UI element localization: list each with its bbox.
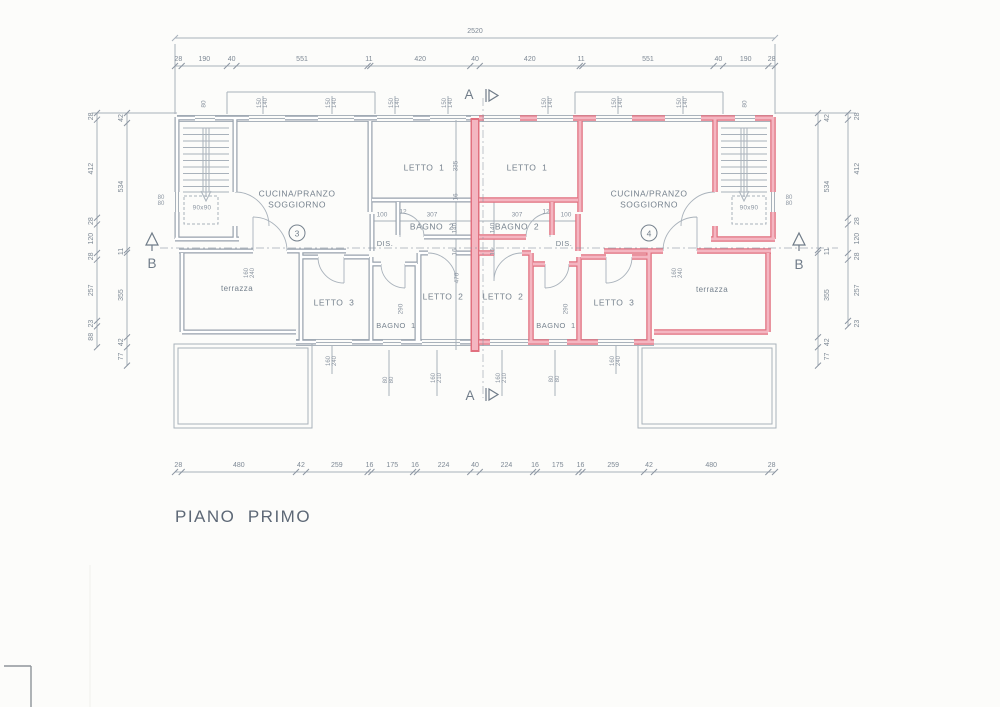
- dim-label: 190: [740, 56, 752, 63]
- dim-label: 412: [854, 163, 861, 175]
- dim-label: 42: [645, 462, 653, 469]
- dim-label: 257: [854, 284, 861, 296]
- dim-label: 11: [577, 56, 584, 63]
- room-label-bagno1-right: BAGNO 1: [536, 322, 575, 330]
- window-dim-pair: 150 140: [326, 98, 338, 108]
- section-label-b-right: B: [794, 258, 803, 272]
- overall-dimension: 2520: [172, 28, 778, 41]
- dim-chain-right-inner: 42534113554277: [815, 110, 831, 369]
- dim-small: 80: [743, 100, 750, 107]
- dim-small: 12: [542, 210, 549, 217]
- dim-label: 551: [642, 56, 654, 63]
- dim-label: 42: [297, 462, 305, 469]
- dim-label: 23: [854, 320, 861, 328]
- room-label-cucina-4-line1: CUCINA/PRANZO: [611, 190, 688, 199]
- dim-small: 80: [202, 100, 209, 107]
- stair-box-label-right: 90x90: [740, 206, 759, 213]
- room-label-letto1-right: LETTO 1: [507, 164, 548, 173]
- dim-label: 480: [233, 462, 245, 469]
- section-arrow-a-top: [486, 89, 498, 102]
- dim-small: 290: [399, 304, 406, 315]
- dim-label: 28: [768, 462, 776, 469]
- dim-label: 534: [118, 181, 125, 193]
- dim-label: 42: [824, 114, 831, 122]
- drawing-title: PIANO PRIMO: [175, 508, 311, 526]
- walls-apartment-4-highlighted: [475, 117, 775, 352]
- dim-label: 16: [411, 462, 419, 469]
- window-dim-pair: 160 240: [610, 356, 622, 366]
- dim-label: 11: [118, 248, 125, 255]
- dim-label: 28: [88, 112, 95, 120]
- room-label-bagno2-left: BAGNO 2: [410, 223, 454, 232]
- window-dim-pair: 160 240: [244, 268, 256, 278]
- dim-label: 28: [854, 112, 861, 120]
- dim-label: 11: [365, 56, 372, 63]
- dim-label: 420: [414, 56, 426, 63]
- window-dim-pair: 150 140: [677, 98, 689, 108]
- dim-label: 11: [824, 248, 831, 255]
- dim-small: 290: [564, 304, 571, 315]
- section-lines: [160, 98, 838, 398]
- dim-label: 16: [577, 462, 585, 469]
- dim-label: 190: [198, 56, 210, 63]
- room-label-dis-left: DIS.: [377, 240, 394, 248]
- window-dim-pair: 160 240: [326, 356, 338, 366]
- dim-label: 28: [88, 217, 95, 225]
- dim-chain-left-outer: 2841228120282572388: [88, 110, 100, 350]
- room-label-letto2-right: LETTO 2: [483, 293, 524, 302]
- dim-label: 534: [824, 181, 831, 193]
- dim-label: 28: [854, 217, 861, 225]
- section-arrow-a-bottom: [486, 388, 498, 401]
- dim-label: 40: [228, 56, 236, 63]
- dim-small: 16: [453, 248, 460, 255]
- dim-small: 12: [399, 210, 406, 217]
- dim-label: 42: [118, 114, 125, 122]
- dim-label: 40: [471, 56, 479, 63]
- dim-label: 480: [705, 462, 717, 469]
- dim-label: 259: [607, 462, 619, 469]
- dim-chain-left-inner: 42534113554277: [118, 110, 130, 369]
- room-label-letto3-right: LETTO 3: [594, 299, 635, 308]
- room-label-terrazza-right: terrazza: [696, 286, 728, 294]
- section-label-a-bottom: A: [465, 389, 474, 403]
- apartment-number-3: 3: [289, 225, 306, 242]
- room-label-cucina-3-line1: CUCINA/PRANZO: [259, 190, 336, 199]
- room-label-letto3-left: LETTO 3: [314, 299, 355, 308]
- frame-corner: [4, 666, 31, 707]
- dim-label: 355: [824, 289, 831, 301]
- room-label-cucina-3-line2: SOGGIORNO: [268, 201, 326, 210]
- dim-label: 28: [88, 252, 95, 260]
- floor-plan-drawing: 2520 28190405511142040420115514019028284…: [0, 0, 1000, 707]
- dim-label: 28: [174, 462, 182, 469]
- dim-label: 40: [714, 56, 722, 63]
- dim-label: 224: [438, 462, 450, 469]
- dim-label: 77: [118, 352, 125, 360]
- dim-label: 551: [296, 56, 308, 63]
- dim-label: 28: [854, 252, 861, 260]
- dim-small: 140: [453, 223, 460, 234]
- dim-small: 16: [454, 193, 461, 200]
- dim-label: 120: [88, 233, 95, 245]
- dim-small: 307: [427, 213, 438, 220]
- window-dim-pair: 150 140: [257, 98, 269, 108]
- room-label-letto1-left: LETTO 1: [404, 164, 445, 173]
- dim-chain-top: 28190405511142040420115514019028: [172, 56, 778, 69]
- window-dim-pair: 160 210: [431, 373, 443, 383]
- dim-label: 28: [768, 56, 776, 63]
- dim-label: 412: [88, 163, 95, 175]
- dim-label: 16: [366, 462, 374, 469]
- section-label-b-left: B: [147, 257, 156, 271]
- window-dim-pair: 160 210: [496, 373, 508, 383]
- dim-small: 16: [491, 248, 498, 255]
- dim-label: 23: [88, 320, 95, 328]
- overall-dim-label: 2520: [467, 28, 483, 35]
- room-label-terrazza-left: terrazza: [221, 285, 253, 293]
- window-dim-pair: 150 140: [389, 98, 401, 108]
- room-label-dis-right: DIS.: [556, 240, 573, 248]
- dim-label: 257: [88, 284, 95, 296]
- room-label-cucina-4-line2: SOGGIORNO: [620, 201, 678, 210]
- section-label-a-top: A: [464, 88, 473, 102]
- room-label-bagno2-right: BAGNO 2: [495, 223, 539, 232]
- dim-small: 335: [454, 161, 461, 172]
- window-dim-pair: 150 140: [612, 98, 624, 108]
- room-label-letto2-left: LETTO 2: [423, 293, 464, 302]
- dim-label: 120: [854, 233, 861, 245]
- dim-label: 420: [524, 56, 536, 63]
- stair-box-label-left: 90x90: [193, 206, 212, 213]
- dim-small: 140: [491, 223, 498, 234]
- window-dim-pair: 80 80: [786, 195, 793, 207]
- apartment-number-4: 4: [641, 225, 658, 242]
- dim-small: 470: [455, 273, 462, 284]
- dim-chain-bottom: 2848042259161751622440224161751625942480…: [172, 462, 778, 475]
- scanned-floor-plan-page: 2520 28190405511142040420115514019028284…: [0, 0, 1000, 707]
- window-dim-pair: 80 80: [383, 377, 395, 384]
- dim-label: 175: [386, 462, 398, 469]
- dim-label: 224: [501, 462, 513, 469]
- dim-label: 40: [471, 462, 479, 469]
- dim-label: 77: [824, 352, 831, 360]
- dim-label: 28: [174, 56, 182, 63]
- dim-chain-right-outer: 28412281202825723: [845, 110, 861, 329]
- dim-label: 42: [118, 338, 125, 346]
- window-dim-pair: 150 140: [542, 98, 554, 108]
- dim-label: 355: [118, 289, 125, 301]
- window-dim-pair: 80 80: [549, 376, 561, 383]
- dim-small: 100: [561, 213, 572, 220]
- room-label-bagno1-left: BAGNO 1: [376, 322, 415, 330]
- dim-label: 88: [88, 333, 95, 341]
- dim-small: 100: [377, 213, 388, 220]
- dim-label: 42: [824, 338, 831, 346]
- dim-label: 175: [552, 462, 564, 469]
- section-arrow-b-left: [146, 233, 158, 251]
- dim-label: 16: [531, 462, 539, 469]
- dim-label: 259: [331, 462, 343, 469]
- window-dim-pair: 150 140: [442, 98, 454, 108]
- window-dim-pair: 160 240: [672, 268, 684, 278]
- dim-small: 307: [512, 213, 523, 220]
- window-dim-pair: 80 80: [158, 195, 165, 207]
